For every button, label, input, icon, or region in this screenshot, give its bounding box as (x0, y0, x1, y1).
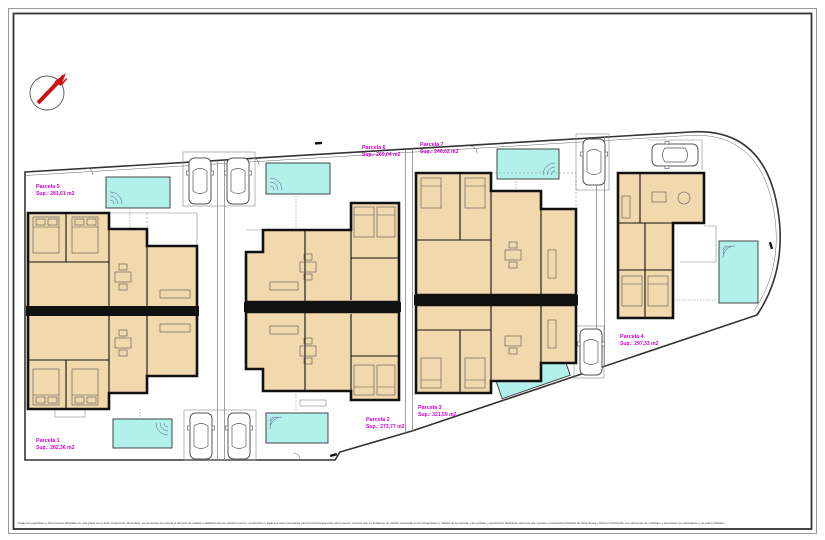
house-parcela7 (416, 173, 576, 295)
house-parcela4-group (618, 173, 704, 318)
svg-text:Parcela 2: Parcela 2 (366, 417, 390, 423)
pool-parcela6 (266, 163, 330, 194)
parcel-label-6: Parcela 6 Sup.: 269,04 m2 (362, 145, 401, 158)
parcel-label-5: Parcela 5 Sup.: 281,61 m2 (36, 184, 75, 197)
pool-parcela1 (113, 419, 172, 448)
pool-parcela7 (497, 149, 559, 179)
pool-parcela4 (719, 241, 758, 303)
svg-text:Sup.: 246,02 m2: Sup.: 246,02 m2 (420, 149, 459, 155)
party-wall (26, 306, 199, 316)
legal-disclaimer: Todas las superficies y dimensiones dibu… (18, 521, 817, 525)
car-icon (224, 158, 251, 204)
svg-text:Sup.: 269,04 m2: Sup.: 269,04 m2 (362, 152, 401, 158)
terrace-edge (246, 230, 263, 252)
parcel-label-7: Parcela 7 Sup.: 246,02 m2 (420, 142, 459, 155)
pool-parcela5 (106, 177, 170, 208)
terrace-edge (680, 226, 716, 262)
svg-text:Sup.: 321,59 m2: Sup.: 321,59 m2 (418, 412, 457, 418)
house-parcela6 (246, 203, 399, 302)
svg-text:Parcela 5: Parcela 5 (36, 184, 60, 190)
parcel-label-4: Parcela 4 Sup.: 297,33 m2 (620, 334, 659, 347)
party-wall (244, 302, 401, 312)
parcel-label-3: Parcela 3 Sup.: 321,59 m2 (418, 405, 457, 418)
car-icon (577, 329, 604, 375)
site-plan-sheet: N (0, 0, 825, 540)
gate-arc (470, 146, 477, 153)
gate-marker (769, 242, 773, 249)
car-icon (652, 141, 698, 168)
parcel-label-1: Parcela 1 Sup.: 282,36 m2 (36, 438, 75, 451)
svg-text:Parcela 3: Parcela 3 (418, 405, 442, 411)
svg-text:Sup.: 281,61 m2: Sup.: 281,61 m2 (36, 191, 75, 197)
svg-text:Parcela 1: Parcela 1 (36, 438, 60, 444)
house-block-p6-p2 (244, 203, 401, 400)
party-wall (414, 295, 578, 305)
car-icon (187, 413, 214, 459)
svg-text:Sup.: 297,33 m2: Sup.: 297,33 m2 (620, 341, 659, 347)
pool-parcela2 (266, 413, 328, 443)
gate-marker (315, 142, 322, 145)
svg-text:Parcela 6: Parcela 6 (362, 145, 386, 151)
house-parcela4 (618, 173, 704, 318)
parcel-label-2: Parcela 2 Sup.: 273,77 m2 (366, 417, 405, 430)
car-icon (225, 413, 252, 459)
porch (300, 400, 326, 406)
svg-text:Sup.: 273,77 m2: Sup.: 273,77 m2 (366, 424, 405, 430)
site-plan-drawing: N (0, 0, 825, 540)
svg-text:Sup.: 282,36 m2: Sup.: 282,36 m2 (36, 445, 75, 451)
gate-arc (293, 453, 300, 460)
car-icon (186, 158, 213, 204)
gate-marker (330, 453, 337, 457)
svg-text:Parcela 7: Parcela 7 (420, 142, 444, 148)
car-icon (580, 139, 607, 185)
svg-text:Parcela 4: Parcela 4 (620, 334, 644, 340)
house-block-p7-p3 (414, 173, 578, 393)
house-block-p5-p1 (26, 213, 199, 409)
north-compass: N (30, 73, 69, 110)
